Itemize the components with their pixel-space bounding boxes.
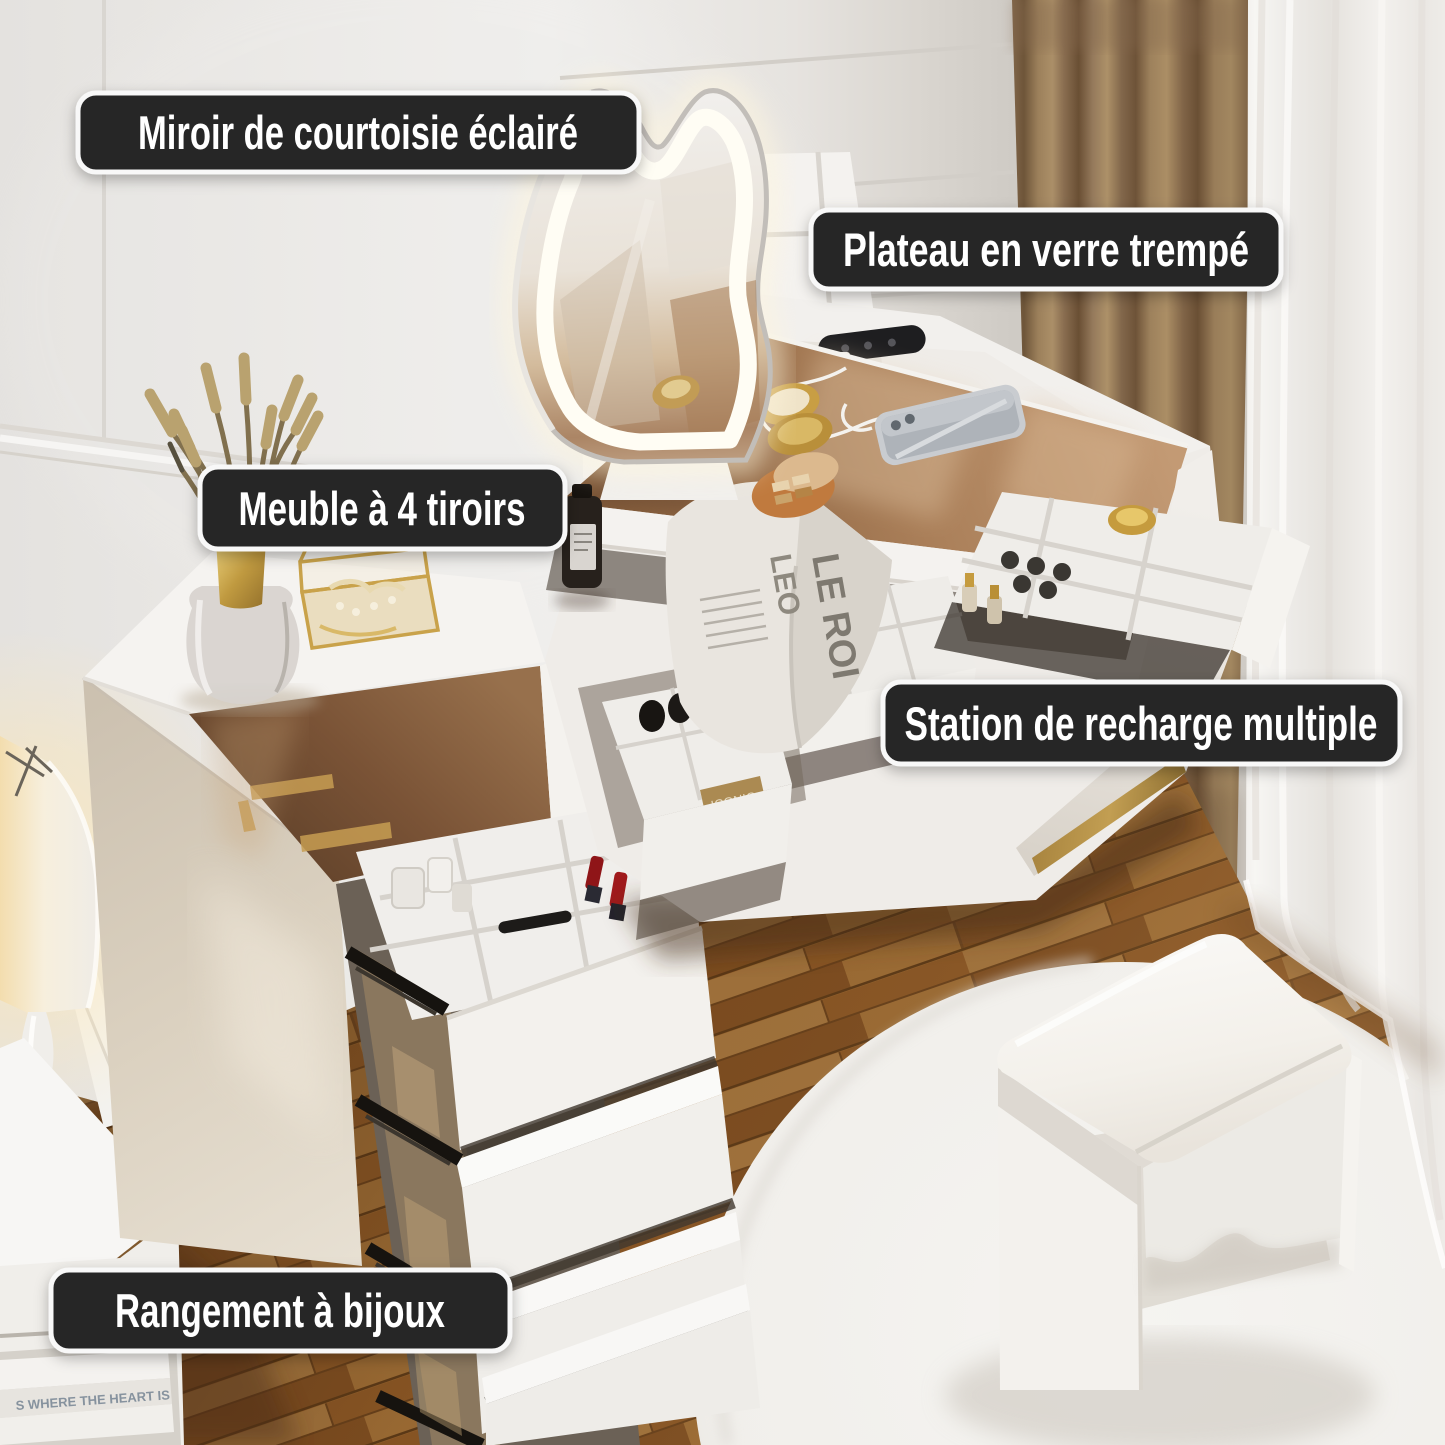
svg-text:Miroir de courtoisie éclairé: Miroir de courtoisie éclairé: [138, 106, 578, 159]
svg-text:Meuble à 4 tiroirs: Meuble à 4 tiroirs: [239, 482, 526, 535]
svg-text:Station de recharge multiple: Station de recharge multiple: [905, 697, 1378, 750]
svg-text:Plateau en verre trempé: Plateau en verre trempé: [843, 223, 1249, 276]
svg-text:Rangement à bijoux: Rangement à bijoux: [115, 1284, 445, 1337]
